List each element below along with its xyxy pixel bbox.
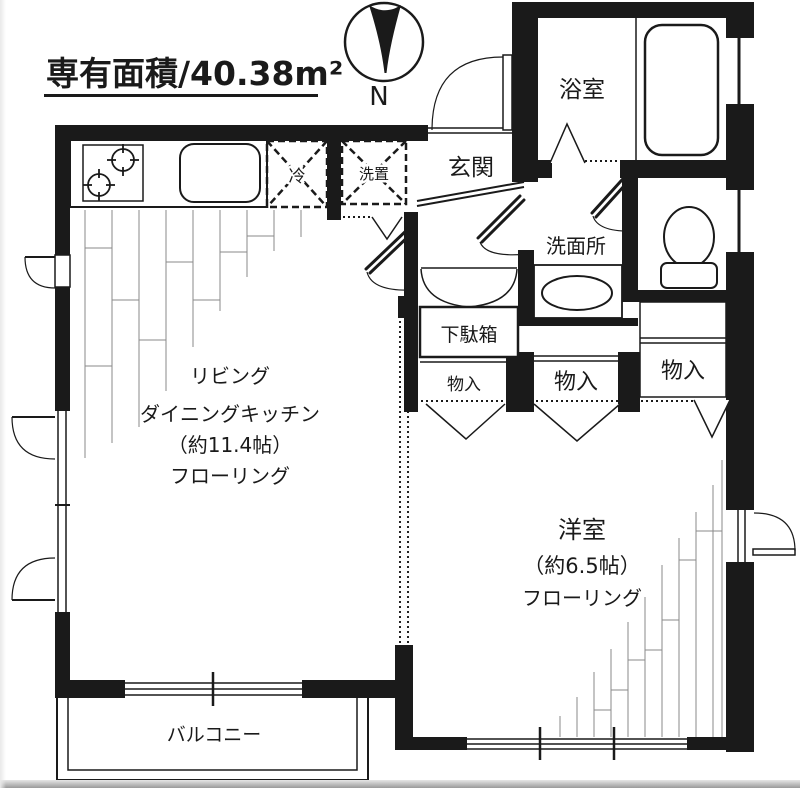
svg-text:（約6.5帖）: （約6.5帖） [523,554,640,578]
svg-text:フローリング: フローリング [170,464,290,488]
floor-plan: 専有面積/40.38m² N [0,0,800,788]
entrance-label: 玄関 [448,155,494,181]
svg-text:リビング: リビング [190,364,270,388]
area-title: 専有面積/40.38m² [44,54,343,97]
balcony-label: バルコニー [167,724,262,746]
svg-text:（約11.4帖）: （約11.4帖） [168,433,293,457]
stove-icon [83,144,143,201]
shoe-cabinet-label: 下駄箱 [440,324,497,346]
kitchen-counter [70,140,267,207]
svg-text:ダイニングキッチン: ダイニングキッチン [140,402,320,426]
title-underline [44,94,318,97]
bath-label: 浴室 [559,77,605,103]
svg-text:フローリング: フローリング [522,586,642,610]
area-title-text: 専有面積/40.38m² [46,54,343,93]
storage-right-label: 物入 [661,359,705,384]
scan-edge-left [0,0,6,788]
washroom-label: 洗面所 [546,234,606,258]
bathtub-icon [645,25,718,155]
toilet-window [726,190,754,252]
bath-window [726,38,754,104]
storage-middle-label: 物入 [554,370,598,395]
compass-north-label: N [369,82,388,112]
toilet-icon [661,207,717,288]
scan-edge-bottom [0,780,800,788]
washer-label: 洗置 [359,165,389,183]
kitchen-sink-icon [180,144,260,202]
washbasin-icon [534,265,622,318]
storage-left-label: 物入 [447,375,481,395]
svg-text:洋室: 洋室 [558,516,606,544]
refrigerator-label: 冷 [289,167,306,187]
